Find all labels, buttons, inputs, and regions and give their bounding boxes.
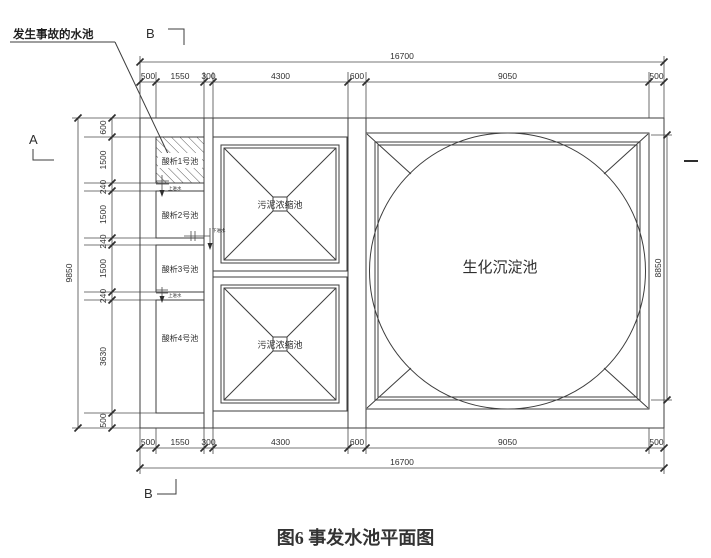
dim-top-seg-2: 300 [201,71,215,81]
dim-top-seg-1: 1550 [171,71,190,81]
dim-bottom-seg-6: 500 [649,437,663,447]
inlet-upper1-label: 上进水 [168,185,182,192]
acid-pool-1-label: 酸析1号池 [162,156,198,166]
sludge-pool-upper: 污泥浓缩池 [213,137,347,271]
acid-pool-3-label: 酸析3号池 [162,264,198,274]
dim-left-seg-7: 3630 [98,347,108,366]
dim-left-seg-2: 240 [98,180,108,194]
sludge-pool-lower-label: 污泥浓缩池 [257,339,302,350]
dim-right-overall: 8850 [653,258,663,277]
dim-top-seg-0: 500 [141,71,155,81]
dim-top-seg-6: 500 [649,71,663,81]
left-dimension-ticks [75,115,116,432]
inlet-symbol-3: 上进水 [156,287,182,303]
dim-left-seg-1: 1500 [98,150,108,169]
drawing-page: 发生事故的水池 A B B 酸析1号池 酸析2号池 酸析3号池 酸析4号池 [0,0,711,558]
dim-bottom-overall: 16700 [390,457,414,467]
dimension-top: 16700 500 1550 300 4300 600 9050 500 [137,51,668,118]
bio-pool-label: 生化沉淀池 [462,259,537,276]
dim-top-overall: 16700 [390,51,414,61]
section-marker-b-top: B [146,26,184,45]
dim-bottom-seg-1: 1550 [171,437,190,447]
dim-bottom-seg-3: 4300 [271,437,290,447]
outer-wall [140,118,664,428]
inlet-upper2-label: 上进水 [168,292,182,299]
bio-sedimentation-pool: 生化沉淀池 [366,133,649,409]
section-a-label: A [29,132,38,147]
section-marker-a: A [29,132,54,160]
down-arrow-icon [208,243,213,250]
section-b-bottom-corner-icon [157,479,176,494]
dim-bottom-seg-0: 500 [141,437,155,447]
dim-left-overall: 9850 [64,263,74,282]
section-b-top-corner-icon [168,29,184,45]
dim-left-seg-6: 240 [98,289,108,303]
sludge-pool-upper-label: 污泥浓缩池 [257,199,302,210]
section-marker-b-bottom: B [144,479,176,501]
acid-pools: 酸析1号池 酸析2号池 酸析3号池 酸析4号池 [156,137,204,413]
dim-left-seg-0: 600 [98,120,108,134]
plan-outline [140,118,664,428]
plan-drawing-svg: 发生事故的水池 A B B 酸析1号池 酸析2号池 酸析3号池 酸析4号池 [0,0,711,522]
acid-pool-4 [156,300,204,413]
dim-top-seg-4: 600 [350,71,364,81]
dim-top-seg-3: 4300 [271,71,290,81]
dim-left-seg-4: 240 [98,234,108,248]
dim-bottom-seg-4: 600 [350,437,364,447]
dim-top-seg-5: 9050 [498,71,517,81]
dim-bottom-seg-5: 9050 [498,437,517,447]
dimension-right: 8850 [651,132,672,404]
section-b-bottom-label: B [144,486,153,501]
top-dimension-ticks [137,59,668,86]
dimension-bottom: 500 1550 300 4300 600 9050 500 16700 [137,428,668,474]
dim-left-seg-3: 1500 [98,205,108,224]
dim-left-seg-5: 1500 [98,259,108,278]
section-b-top-label: B [146,26,155,41]
figure-caption: 图6 事发水池平面图 [0,524,711,550]
dim-bottom-seg-2: 300 [201,437,215,447]
dimension-left: 9850 600 1500 240 1500 240 1500 240 3630… [64,115,156,432]
dim-left-seg-8: 500 [98,413,108,427]
acid-pool-4-label: 酸析4号池 [162,333,198,343]
sludge-pool-lower: 污泥浓缩池 [213,277,347,411]
section-a-corner-icon [33,149,54,160]
acid-pool-2-label: 酸析2号池 [162,210,198,220]
accident-pool-label: 发生事故的水池 [12,27,94,41]
down-arrow-icon [160,190,165,197]
